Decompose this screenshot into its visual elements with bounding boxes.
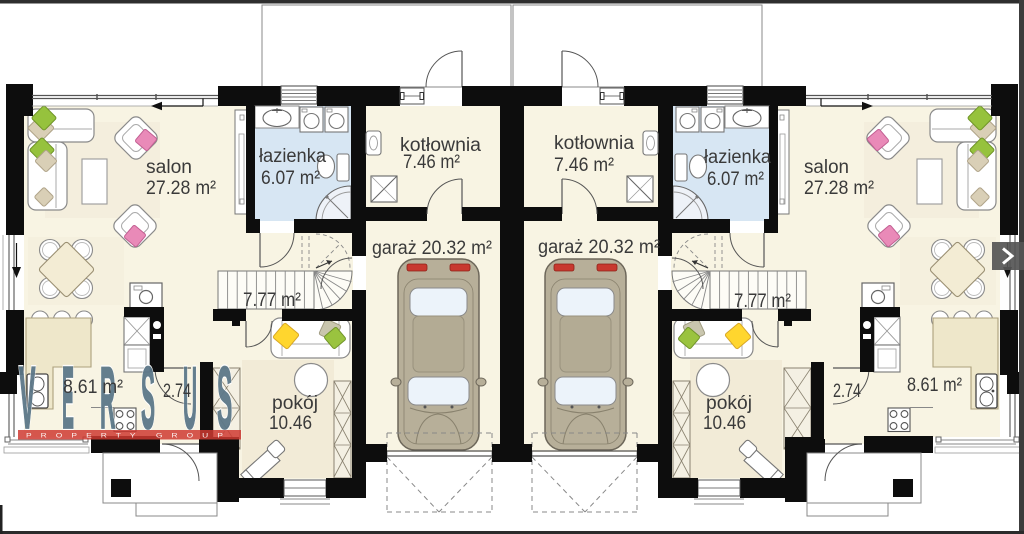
svg-text:27.28 m²: 27.28 m² — [146, 178, 216, 199]
svg-text:łazienka: łazienka — [704, 147, 771, 168]
svg-text:6.07 m²: 6.07 m² — [261, 168, 320, 189]
svg-text:2.74: 2.74 — [833, 381, 861, 402]
svg-text:garaż 20.32 m²: garaż 20.32 m² — [372, 238, 492, 259]
svg-text:garaż 20.32 m²: garaż 20.32 m² — [538, 237, 660, 258]
svg-text:27.28 m²: 27.28 m² — [804, 178, 874, 199]
svg-text:10.46: 10.46 — [703, 413, 746, 434]
svg-text:6.07 m²: 6.07 m² — [707, 169, 764, 190]
svg-text:pokój: pokój — [272, 393, 318, 414]
svg-text:salon: salon — [146, 157, 192, 178]
svg-text:8.61 m²: 8.61 m² — [907, 375, 962, 396]
svg-text:salon: salon — [804, 157, 849, 178]
svg-text:pokój: pokój — [706, 393, 752, 414]
svg-text:7.77 m²: 7.77 m² — [734, 291, 791, 312]
svg-text:7.77 m²: 7.77 m² — [243, 290, 301, 311]
svg-text:2.74: 2.74 — [163, 381, 191, 402]
svg-text:8.61 m²: 8.61 m² — [63, 377, 123, 398]
svg-text:PROPERTY GROUP: PROPERTY GROUP — [26, 433, 232, 440]
svg-text:7.46 m²: 7.46 m² — [554, 155, 614, 176]
svg-text:10.46: 10.46 — [269, 413, 312, 434]
svg-text:kotłownia: kotłownia — [554, 133, 634, 154]
svg-text:łazienka: łazienka — [259, 146, 326, 167]
svg-text:7.46 m²: 7.46 m² — [403, 152, 460, 173]
